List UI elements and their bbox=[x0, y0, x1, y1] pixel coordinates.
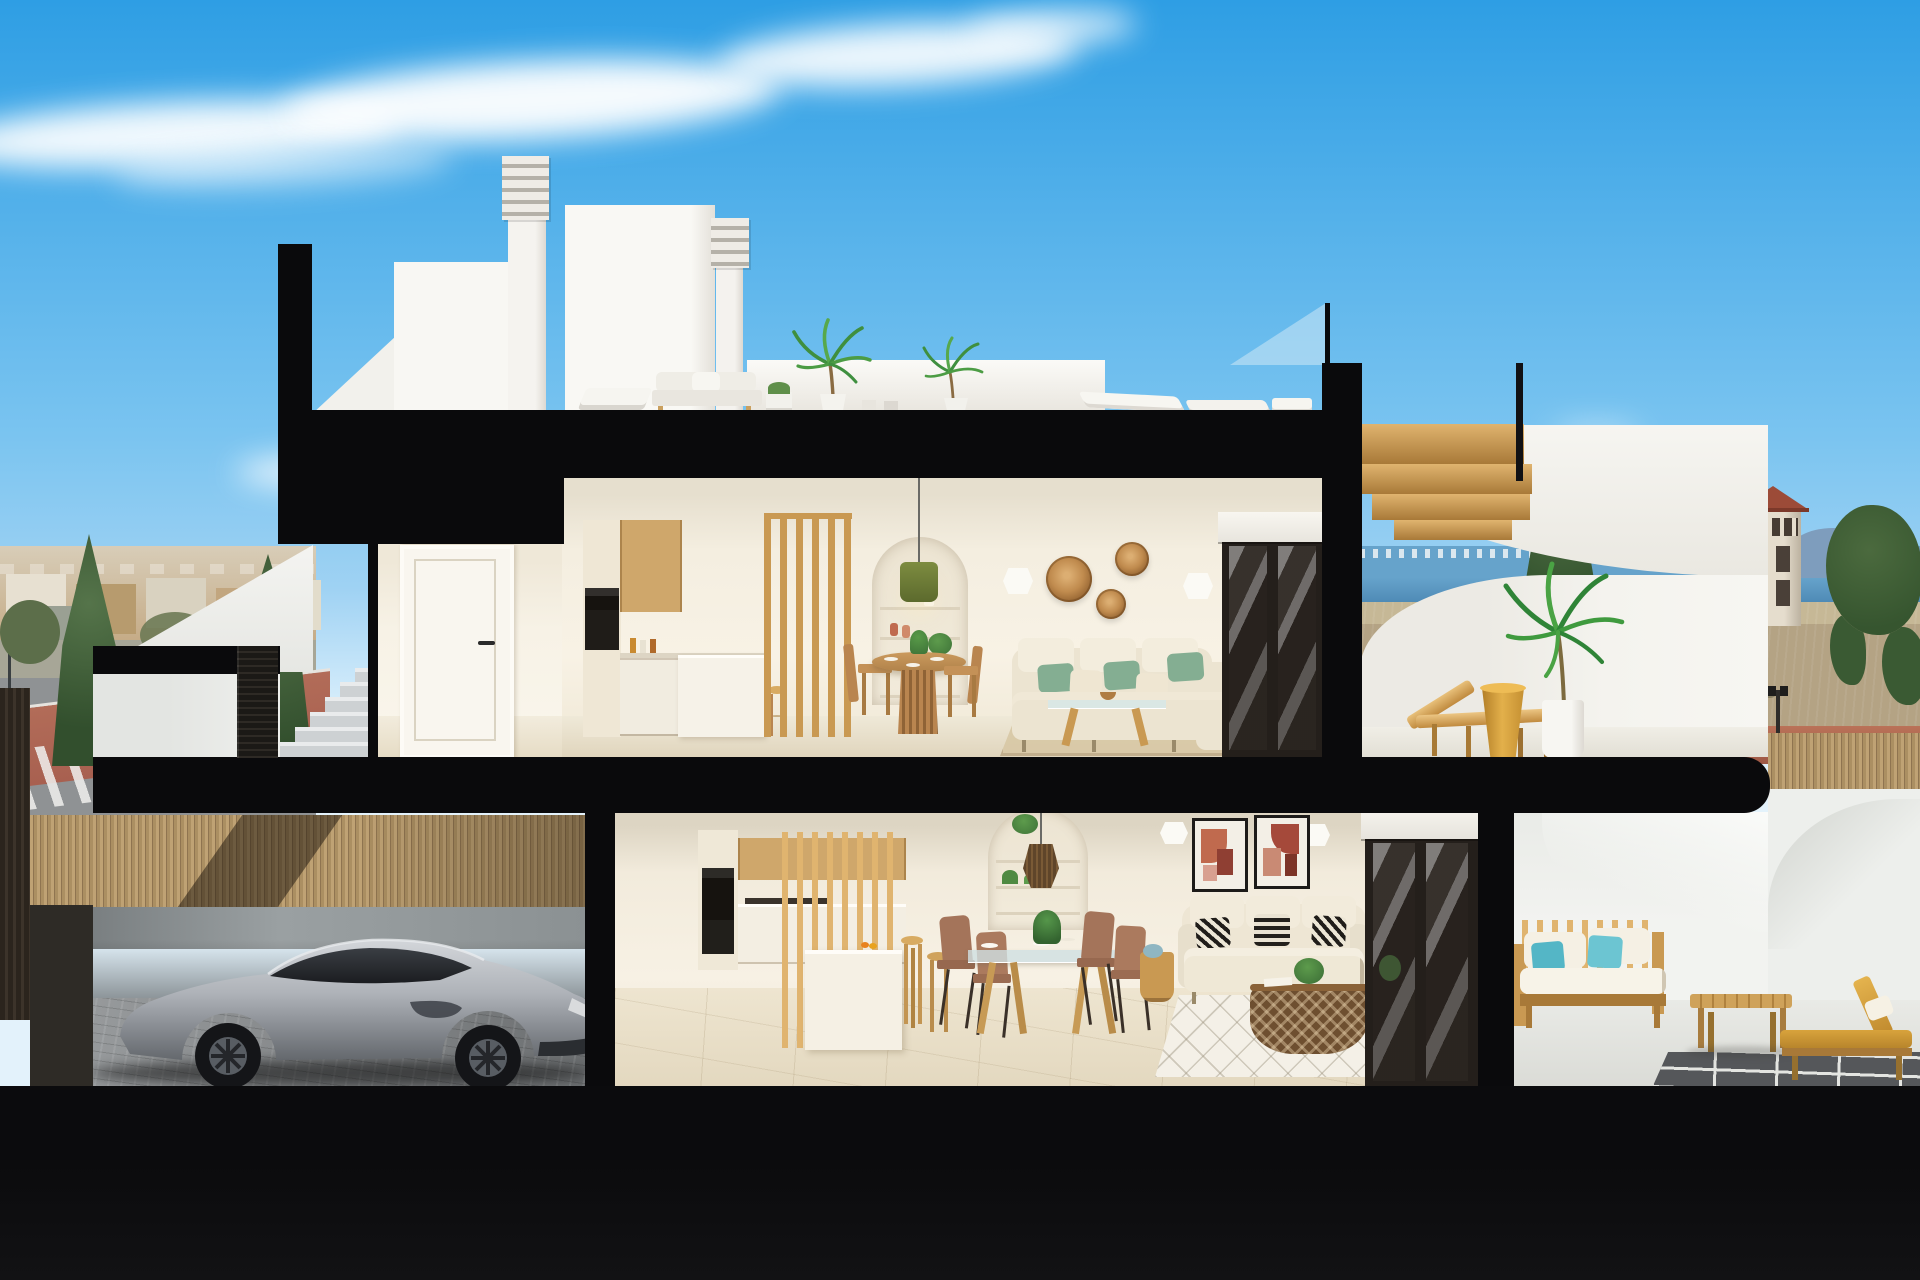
roller-blind-header bbox=[1218, 512, 1329, 542]
dining-table-pedestal bbox=[898, 670, 938, 734]
railing-post bbox=[1516, 363, 1523, 481]
roof-planter-grass bbox=[768, 382, 790, 394]
chaise-frame bbox=[1782, 1048, 1912, 1056]
terracotta-vases bbox=[890, 623, 898, 636]
kitchen-island bbox=[678, 655, 764, 737]
upper-entry-hall bbox=[378, 544, 562, 757]
louvered-entry-gate bbox=[237, 646, 278, 758]
railing-post-roof bbox=[1325, 303, 1330, 365]
table-vase-plant bbox=[910, 630, 928, 654]
niche-plant bbox=[1002, 870, 1018, 884]
pillow-teal bbox=[1587, 935, 1623, 969]
bushes bbox=[0, 600, 60, 664]
plant-behind-glass bbox=[1379, 955, 1401, 981]
ground-main-room bbox=[615, 812, 1478, 1088]
coffee-table-wood-leg bbox=[1132, 708, 1149, 747]
roof-outdoor-sofa bbox=[652, 372, 762, 412]
architectural-cross-section-render bbox=[0, 0, 1920, 1280]
wood-slat-partition bbox=[764, 513, 852, 737]
blanket-basket bbox=[1140, 952, 1174, 1002]
basket-coffee-table bbox=[1250, 984, 1368, 1054]
step bbox=[310, 712, 376, 727]
cut-roof-slab bbox=[562, 410, 1328, 478]
dining-chair bbox=[967, 646, 983, 705]
niche-plant-top bbox=[1012, 814, 1038, 834]
stool-legs bbox=[904, 944, 908, 1024]
roof-planter bbox=[766, 392, 792, 412]
upper-main-room bbox=[562, 478, 1325, 757]
glass-pane bbox=[1426, 843, 1468, 1081]
tower-window bbox=[1776, 546, 1790, 572]
pendant-cord bbox=[918, 478, 920, 566]
rattan-wall-basket bbox=[1046, 556, 1092, 602]
stool-legs bbox=[930, 960, 934, 1032]
chimney-louver-cap bbox=[502, 156, 549, 220]
abstract-shapes bbox=[1203, 865, 1217, 881]
art-print bbox=[1192, 818, 1248, 892]
table-plates bbox=[981, 943, 998, 948]
dining-chair-brown bbox=[1081, 911, 1115, 961]
rattan-wall-basket bbox=[1115, 542, 1149, 576]
sports-car bbox=[110, 914, 620, 1090]
gold-chaise bbox=[1780, 974, 1920, 1086]
chair-legs bbox=[948, 675, 952, 717]
seat-cushion bbox=[1520, 968, 1666, 994]
cut-column-kitchen bbox=[585, 810, 615, 1090]
cut-door-jamb bbox=[368, 544, 378, 758]
sofa-wood-base bbox=[1520, 994, 1666, 1006]
abstract-shapes bbox=[1217, 849, 1233, 875]
gold-stair-tread bbox=[1394, 520, 1512, 540]
table-plates bbox=[884, 657, 898, 661]
oven bbox=[585, 588, 619, 650]
coffee-table bbox=[1048, 700, 1166, 746]
sliding-door bbox=[1222, 512, 1325, 757]
coffee-table-wood-leg bbox=[1062, 708, 1079, 747]
garage bbox=[30, 812, 585, 1088]
table-centerpiece-plant bbox=[1033, 910, 1061, 944]
counter-bottles bbox=[630, 638, 636, 653]
street-lamp bbox=[1776, 690, 1780, 738]
table-top-slats bbox=[1690, 994, 1792, 1008]
gold-stair-tread bbox=[1352, 464, 1532, 494]
chaise-seat bbox=[1780, 1030, 1912, 1048]
cut-mid-floor-slab bbox=[93, 757, 1770, 813]
patio-coffee-table bbox=[1690, 994, 1792, 1058]
terrace-palm-pot bbox=[1542, 700, 1584, 758]
glass-pane bbox=[1278, 546, 1316, 750]
cloud-bank bbox=[0, 0, 1244, 224]
gold-stair-tread bbox=[1338, 424, 1524, 464]
rear-patio bbox=[1512, 812, 1920, 1088]
upper-cabinets-oak bbox=[620, 520, 682, 612]
roof-parapet-left-slope bbox=[312, 336, 396, 414]
door-panel-line bbox=[414, 559, 496, 741]
chimney bbox=[508, 218, 546, 414]
sliding-door bbox=[1365, 805, 1478, 1088]
bamboo-fence-right bbox=[1768, 733, 1920, 789]
abstract-shapes bbox=[1285, 854, 1297, 876]
sofa-legs bbox=[1022, 740, 1026, 752]
ground-base bbox=[0, 1086, 1920, 1280]
oven bbox=[702, 868, 734, 954]
street-lamp-heads bbox=[1768, 686, 1776, 696]
lounger-leg bbox=[1432, 724, 1437, 756]
pendant-lamp-green bbox=[900, 562, 938, 602]
wall-sconce bbox=[1160, 822, 1188, 844]
cut-roof-slab-left bbox=[312, 410, 564, 544]
basket-weave bbox=[1250, 984, 1368, 1054]
table-legs bbox=[1698, 1008, 1704, 1048]
terrace-palm-plant bbox=[1498, 556, 1628, 708]
step bbox=[280, 742, 376, 757]
left-dark-wall bbox=[30, 905, 93, 1087]
patio-wood-sofa bbox=[1514, 904, 1680, 1072]
gold-stair-tread bbox=[1372, 494, 1530, 520]
cloud bbox=[966, 5, 1138, 50]
slat-partition-top-rail bbox=[764, 513, 852, 519]
table-plant bbox=[1294, 958, 1324, 984]
glass-railing bbox=[1230, 303, 1326, 365]
door-handle bbox=[478, 641, 495, 645]
chair-seat bbox=[1077, 958, 1115, 967]
left-slat-gate bbox=[0, 688, 30, 1020]
fruit-bowl bbox=[861, 942, 869, 948]
chair-legs bbox=[862, 673, 866, 715]
cut-column-right-upper bbox=[1322, 363, 1362, 813]
wall-sconce bbox=[1003, 568, 1033, 594]
entry-steps bbox=[280, 668, 376, 757]
cut-column-ground-right bbox=[1478, 810, 1514, 1090]
chaise-legs bbox=[1792, 1056, 1798, 1080]
pillow-patterned bbox=[1195, 917, 1231, 949]
sofa-cushions bbox=[656, 372, 756, 392]
abstract-shapes bbox=[1263, 848, 1281, 876]
interior-door bbox=[400, 545, 514, 759]
sofa-wood-legs bbox=[1526, 1006, 1532, 1028]
rattan-pendant-lamp bbox=[1023, 844, 1059, 888]
sofa-base bbox=[652, 390, 762, 406]
dining-chair bbox=[944, 666, 978, 675]
glass-pane bbox=[1229, 546, 1267, 750]
niche-shelf bbox=[880, 607, 960, 610]
pillow-patterned bbox=[1311, 915, 1347, 947]
sofa-legs bbox=[1192, 992, 1196, 1004]
chimney-louver-cap bbox=[711, 218, 749, 268]
step bbox=[295, 727, 376, 742]
cloud bbox=[278, 48, 781, 152]
wall-sconce bbox=[1183, 573, 1213, 599]
island bbox=[805, 950, 902, 1050]
coffee-table-glass-top bbox=[1048, 700, 1166, 708]
cut-roof-edge-left bbox=[278, 244, 312, 544]
bamboo-shade bbox=[360, 815, 585, 907]
blanket bbox=[1143, 944, 1163, 958]
pendant-cord bbox=[1040, 812, 1042, 846]
roof-lounger bbox=[578, 388, 653, 410]
art-print bbox=[1254, 815, 1310, 889]
pillow-patterned bbox=[1254, 914, 1290, 946]
rattan-wall-basket bbox=[1096, 589, 1126, 619]
